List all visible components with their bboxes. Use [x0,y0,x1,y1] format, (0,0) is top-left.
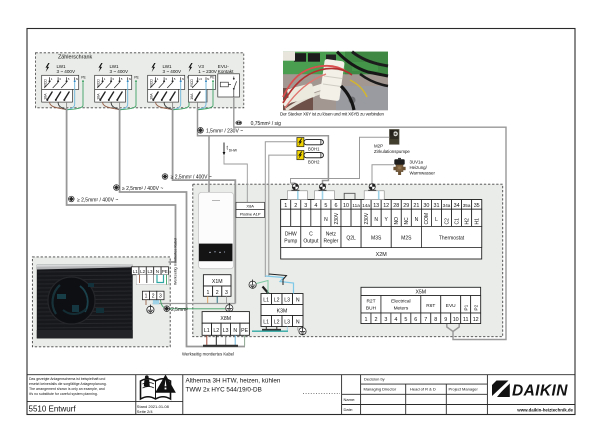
svg-text:N: N [233,328,237,334]
svg-text:L2: L2 [274,298,280,304]
svg-text:DAIKIN: DAIKIN [512,382,568,399]
svg-text:LW1: LW1 [57,64,67,69]
svg-text:PE: PE [241,328,248,334]
svg-text:5510 Entwurf: 5510 Entwurf [29,405,77,414]
svg-text:L: L [435,217,438,223]
svg-text:3UV1a: 3UV1a [410,159,424,164]
svg-text:TWW 2x HYC 544/19/0-DB: TWW 2x HYC 544/19/0-DB [186,386,262,393]
svg-text:L3: L3 [223,328,229,334]
svg-text:34a: 34a [443,203,451,208]
svg-text:16A: 16A [96,93,100,100]
svg-text:35a: 35a [463,203,471,208]
svg-text:C2: C2 [444,218,450,225]
svg-text:10: 10 [343,203,349,209]
svg-text:L2: L2 [213,328,219,334]
svg-text:28: 28 [393,203,399,209]
svg-text:11a: 11a [352,203,360,208]
svg-text:16A: 16A [190,93,194,100]
svg-text:1: 1 [284,203,287,209]
svg-text:P2: P2 [474,304,480,310]
svg-text:5: 5 [324,203,327,209]
svg-text:DHW: DHW [285,232,297,238]
svg-text:www.daikin-heiztechnik.de: www.daikin-heiztechnik.de [516,407,573,412]
svg-text:L1: L1 [263,320,269,326]
svg-text:4: 4 [394,317,397,323]
svg-text:BOH2: BOH2 [308,160,320,165]
svg-text:Regler: Regler [324,239,339,245]
svg-text:M2P: M2P [374,143,383,148]
svg-text:X8M: X8M [220,316,231,322]
svg-text:N: N [296,298,300,304]
svg-text:3 ~ 400V: 3 ~ 400V [163,69,182,74]
svg-text:EVU: EVU [446,303,456,309]
svg-text:9: 9 [444,317,447,323]
svg-text:2: 2 [216,290,219,296]
svg-text:1: 1 [207,290,210,296]
svg-text:Meters: Meters [394,306,409,312]
svg-text:Kontakt: Kontakt [218,69,234,74]
svg-text:8: 8 [434,317,437,323]
svg-text:1: 1 [365,317,368,323]
svg-text:N: N [76,77,78,81]
svg-text:3: 3 [384,317,387,323]
svg-text:7: 7 [424,317,427,323]
svg-text:Seite 2/4: Seite 2/4 [137,409,154,414]
svg-text:L3: L3 [199,77,203,81]
svg-text:N: N [207,77,209,81]
svg-text:6: 6 [414,317,417,323]
svg-text:X5M: X5M [415,290,426,296]
svg-text:EVU-: EVU- [218,64,229,69]
svg-text:L1: L1 [133,269,138,274]
svg-text:BUH: BUH [366,306,377,312]
svg-text:16A: 16A [149,93,153,100]
svg-text:M2S: M2S [401,236,412,242]
svg-text:Head of R & D: Head of R & D [410,387,436,392]
svg-text:1,5mm² / 230V ~: 1,5mm² / 230V ~ [206,129,243,135]
svg-text:LW1: LW1 [163,64,173,69]
svg-text:PE: PE [210,76,215,80]
svg-text:K3M: K3M [277,309,288,315]
svg-text:it's no substitute for careful: it's no substitute for careful system pl… [29,392,98,396]
svg-text:Electrical: Electrical [391,299,410,305]
svg-text:11: 11 [463,317,469,323]
svg-text:6: 6 [335,203,338,209]
svg-text:L2: L2 [274,320,280,326]
svg-text:The arrangement shown is only: The arrangement shown is only an example… [29,387,105,391]
svg-text:14a: 14a [362,203,370,208]
svg-text:N: N [415,217,419,223]
svg-text:30: 30 [423,203,429,209]
svg-text:NC: NC [404,217,410,225]
svg-text:H1: H1 [475,218,481,225]
svg-text:Zählerschrank: Zählerschrank [58,55,92,61]
svg-text:Zirkulationspumpe: Zirkulationspumpe [374,149,410,154]
svg-text:L1: L1 [263,298,269,304]
svg-text:3: 3 [159,294,162,300]
svg-text:Thermostat: Thermostat [439,236,465,242]
svg-text:4: 4 [314,203,317,209]
svg-text:29: 29 [403,203,409,209]
svg-text:≥ 2,5mm² / 400V ~: ≥ 2,5mm² / 400V ~ [77,197,118,203]
svg-text:X8A: X8A [246,204,254,209]
svg-text:PE: PE [81,76,86,80]
svg-text:N: N [296,320,300,326]
svg-text:Pump: Pump [284,239,297,245]
svg-text:Q2L: Q2L [346,236,356,242]
svg-text:N: N [129,77,131,81]
svg-text:Werkseitig montiertes Kabel: Werkseitig montiertes Kabel [174,238,178,285]
svg-text:0,75mm² / sig: 0,75mm² / sig [251,121,282,127]
svg-text:X2M: X2M [376,252,388,258]
svg-text:L1: L1 [204,328,210,334]
svg-text:R6T: R6T [426,303,435,309]
svg-text:L3: L3 [284,298,290,304]
svg-text:Das gezeigte Anlagenschema ist: Das gezeigte Anlagenschema ist beispielh… [29,377,105,381]
svg-text:2: 2 [294,203,297,209]
svg-text:DHW: DHW [229,149,238,153]
svg-text:C: C [309,232,313,238]
svg-text:P1: P1 [464,304,470,310]
svg-text:21: 21 [413,203,419,209]
svg-text:230V: 230V [334,212,340,224]
svg-text:≥ 2,5mm² / 400V ~: ≥ 2,5mm² / 400V ~ [171,175,212,181]
svg-text:10: 10 [453,317,459,323]
svg-text:5: 5 [404,317,407,323]
svg-text:2: 2 [375,317,378,323]
svg-text:35: 35 [474,203,480,209]
svg-text:12: 12 [473,317,479,323]
svg-text:RCD: RCD [190,79,194,87]
svg-text:13: 13 [373,203,379,209]
svg-text:PE: PE [134,76,139,80]
svg-text:Der Stecker X6Y ist zu lösen u: Der Stecker X6Y ist zu lösen und mit X6Y… [280,111,384,116]
svg-text:BOH1: BOH1 [308,147,320,152]
svg-text:COM: COM [424,213,430,225]
svg-text:X1M: X1M [212,279,223,285]
svg-text:Managing Director: Managing Director [364,387,397,392]
svg-text:ersetzt keinesfalls die sorgfä: ersetzt keinesfalls die sorgfältige Anla… [29,382,107,386]
svg-text:≥ 2,5mm² / 400V ~: ≥ 2,5mm² / 400V ~ [122,186,163,192]
svg-text:R2T: R2T [366,299,375,305]
svg-text:16A: 16A [43,93,47,100]
svg-text:Name:: Name: [344,397,356,402]
svg-text:M3S: M3S [371,236,382,242]
svg-text:L3: L3 [148,269,153,274]
svg-text:31: 31 [434,203,440,209]
svg-text:LW1: LW1 [110,64,120,69]
svg-text:N: N [374,217,378,223]
svg-text:H2: H2 [464,218,470,225]
svg-text:3 ~ 400V: 3 ~ 400V [57,69,76,74]
svg-text:NO: NO [394,217,400,225]
svg-text:L2: L2 [140,269,145,274]
svg-text:Date:: Date: [344,407,354,412]
svg-text:PE: PE [162,269,168,274]
svg-text:3: 3 [225,290,228,296]
svg-text:1 ~ 230V: 1 ~ 230V [198,69,217,74]
svg-text:Platine A1P: Platine A1P [240,211,261,216]
svg-text:Netz: Netz [326,232,337,238]
svg-text:N: N [156,269,159,274]
svg-text:2: 2 [152,294,155,300]
svg-text:Decision by: Decision by [364,377,385,382]
svg-text:Altherma 3H HTW, heizen, kühle: Altherma 3H HTW, heizen, kühlen [186,377,281,384]
svg-text:230V: 230V [364,212,370,224]
svg-text:34: 34 [454,203,460,209]
svg-text:1: 1 [145,294,148,300]
svg-text:L3: L3 [284,320,290,326]
svg-text:N: N [182,77,184,81]
svg-text:12: 12 [383,203,389,209]
svg-text:C1: C1 [454,218,460,225]
svg-text:Output: Output [303,239,319,245]
svg-text:Werkseitig montiertes Kabel: Werkseitig montiertes Kabel [182,352,234,357]
svg-text:Project Manager: Project Manager [449,387,479,392]
svg-text:Heizung/: Heizung/ [410,165,428,170]
svg-text:3: 3 [304,203,307,209]
svg-text:2,5mm²: 2,5mm² [171,307,188,313]
svg-text:3 ~ 400V: 3 ~ 400V [110,69,129,74]
svg-text:Warmwasser: Warmwasser [410,171,436,176]
svg-text:N: N [324,217,328,223]
svg-text:V3: V3 [198,64,204,69]
